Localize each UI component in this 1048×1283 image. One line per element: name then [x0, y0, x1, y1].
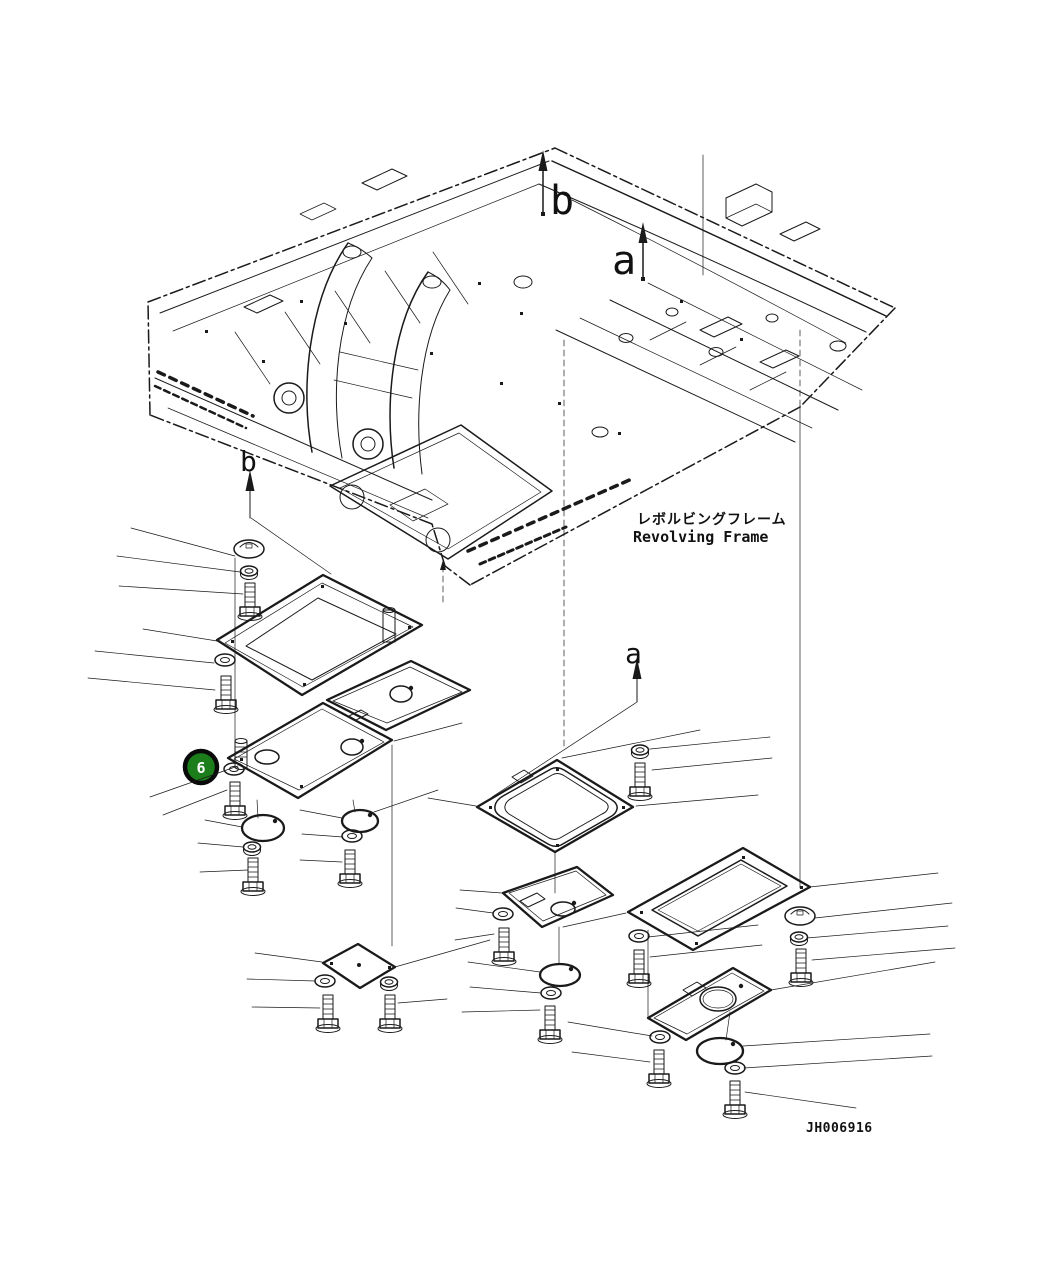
callout-number: 6	[196, 759, 205, 777]
bolt-icon	[223, 782, 247, 820]
oval-cover-icon	[342, 810, 378, 832]
bolt-icon	[628, 763, 652, 801]
parts-diagram-canvas: b a b a レボルビングフレーム Revolving Frame	[0, 0, 1048, 1283]
view-arrow-a-top: a	[612, 222, 648, 284]
revolving-frame-drawing	[148, 148, 895, 604]
frame-title-jp: レボルビングフレーム	[637, 511, 787, 528]
washer-icon	[650, 1031, 670, 1043]
view-label-a-side: a	[625, 637, 642, 670]
washer-icon	[725, 1062, 745, 1074]
cover-plate-large-left	[217, 575, 422, 695]
bolt-icon	[538, 1006, 562, 1044]
boom-foot-bearing	[274, 383, 304, 413]
bolt-icon	[316, 995, 340, 1033]
bolt-icon	[627, 950, 651, 988]
bolt-icon	[338, 850, 362, 888]
drawing-code: JH006916	[806, 1121, 873, 1136]
bolt-icon	[378, 995, 402, 1033]
bolt-icon	[241, 858, 265, 896]
bolt-icon	[723, 1081, 747, 1119]
parts-diagram-page: b a b a レボルビングフレーム Revolving Frame	[0, 0, 1048, 1283]
circle-hole-plate	[648, 968, 771, 1040]
frame-top-brackets	[244, 169, 820, 313]
leader-lines	[88, 528, 955, 1108]
cover-plate-small-right	[327, 661, 470, 730]
large-cover-plate-right	[628, 848, 810, 950]
bolt-icon	[647, 1050, 671, 1088]
left-cover-assembly	[214, 540, 470, 896]
nut-icon	[791, 932, 808, 946]
view-label-b-top: b	[550, 178, 574, 224]
frame-left-rails	[155, 161, 549, 518]
oval-cover-icon	[697, 1038, 743, 1064]
nut-icon	[381, 977, 398, 991]
cutout-plate-middle	[503, 867, 613, 927]
boom-mount-bracket	[274, 243, 450, 474]
bolt-icon	[492, 928, 516, 966]
nut-icon	[632, 745, 649, 759]
washer-icon	[315, 975, 335, 987]
dome-washer-icon	[785, 907, 815, 925]
arrow-head	[639, 222, 648, 243]
washer-icon	[541, 987, 561, 999]
view-arrow-b-top: b	[539, 150, 575, 224]
view-arrow-b-side: b	[240, 445, 257, 518]
plug-pin-icon	[383, 608, 395, 643]
boom-foot-bearing	[353, 429, 383, 459]
bolt-icon	[789, 949, 813, 987]
oval-cover-icon	[242, 815, 284, 841]
oval-cover-icon	[540, 964, 580, 986]
dome-washer-icon	[234, 540, 264, 558]
view-label-a-top: a	[612, 238, 636, 284]
frame-title: レボルビングフレーム Revolving Frame	[633, 511, 787, 546]
right-cover-assembly	[628, 848, 815, 1119]
hatch-frame-plate	[477, 760, 633, 852]
washer-icon	[629, 930, 649, 942]
bolt-icon	[214, 676, 238, 714]
nut-icon	[241, 566, 258, 580]
view-label-b-side: b	[240, 445, 257, 478]
frame-title-en: Revolving Frame	[633, 528, 768, 546]
frame-right-rails	[539, 155, 886, 442]
nut-icon	[244, 842, 261, 856]
small-square-plate-assembly	[315, 944, 402, 1033]
washer-icon	[224, 763, 244, 775]
washer-icon	[493, 908, 513, 920]
cover-plate-small-left	[228, 703, 392, 798]
washer-icon	[215, 654, 235, 666]
frame-center-recess	[330, 425, 552, 559]
view-arrow-a-side: a	[625, 637, 642, 702]
callout-balloon-6[interactable]: 6	[185, 751, 217, 783]
middle-cover-assembly	[477, 745, 671, 1088]
